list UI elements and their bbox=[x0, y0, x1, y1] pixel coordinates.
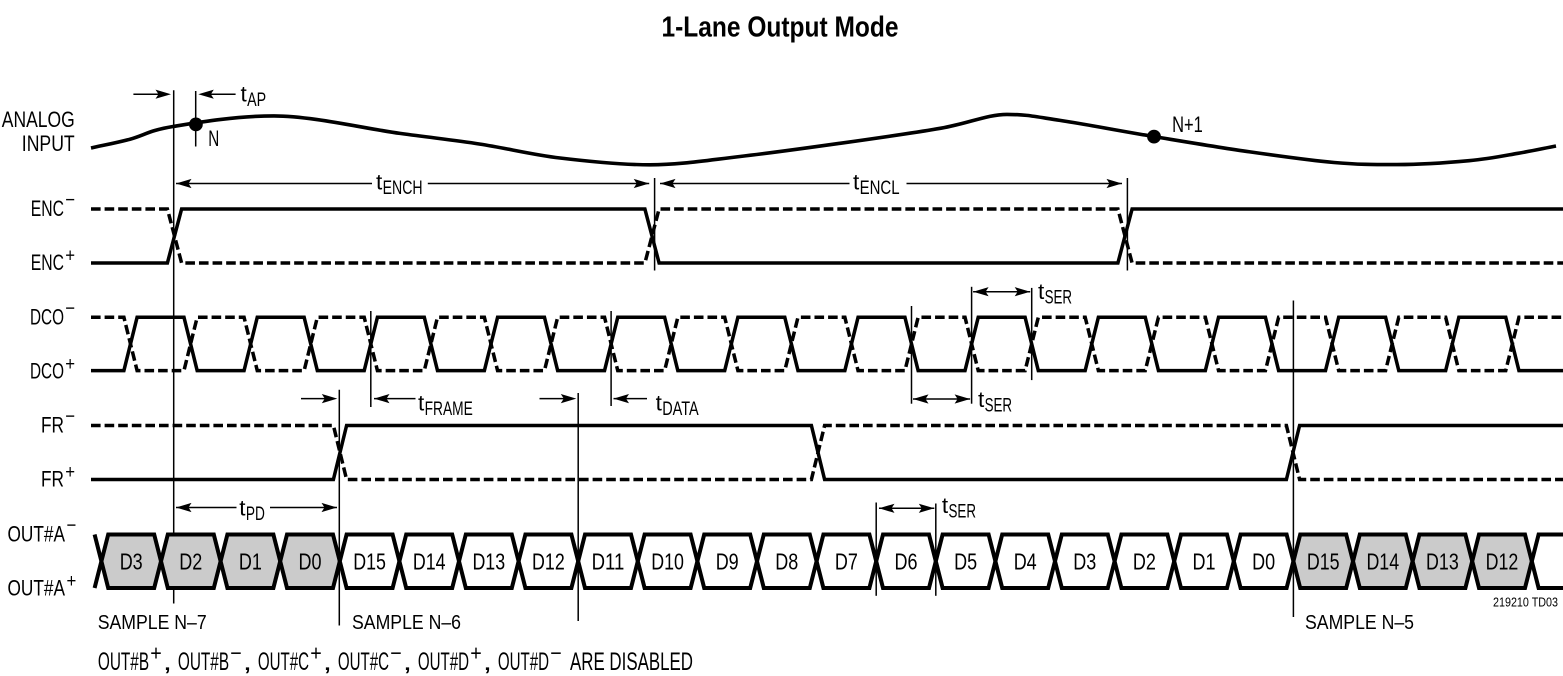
svg-text:ENCH: ENCH bbox=[383, 177, 423, 199]
svg-text:+: + bbox=[65, 461, 75, 483]
svg-text:+: + bbox=[65, 245, 75, 267]
svg-text:−: − bbox=[550, 641, 562, 666]
svg-text:D2: D2 bbox=[179, 548, 202, 574]
svg-text:,: , bbox=[403, 648, 412, 676]
svg-text:D1: D1 bbox=[239, 548, 262, 574]
svg-text:D4: D4 bbox=[1014, 548, 1037, 574]
svg-text:N+1: N+1 bbox=[1172, 112, 1203, 137]
svg-text:219210 TD03: 219210 TD03 bbox=[1493, 596, 1558, 610]
svg-text:PD: PD bbox=[246, 503, 265, 525]
svg-text:SER: SER bbox=[985, 395, 1013, 417]
svg-text:OUT#B: OUT#B bbox=[178, 648, 229, 676]
svg-text:−: − bbox=[67, 514, 77, 536]
svg-text:D13: D13 bbox=[1426, 548, 1459, 574]
svg-text:+: + bbox=[67, 570, 77, 592]
svg-text:ANALOG: ANALOG bbox=[2, 107, 75, 132]
svg-text:−: − bbox=[65, 298, 75, 320]
svg-text:FR: FR bbox=[41, 413, 64, 438]
svg-text:OUT#B: OUT#B bbox=[98, 648, 149, 676]
svg-text:,: , bbox=[163, 648, 172, 676]
svg-text:INPUT: INPUT bbox=[22, 131, 75, 156]
svg-text:D7: D7 bbox=[835, 548, 858, 574]
svg-text:SAMPLE N–7: SAMPLE N–7 bbox=[98, 611, 207, 634]
svg-text:DCO: DCO bbox=[30, 358, 64, 383]
svg-text:D15: D15 bbox=[1307, 548, 1340, 574]
svg-text:1-Lane Output Mode: 1-Lane Output Mode bbox=[662, 12, 899, 44]
svg-text:DCO: DCO bbox=[30, 305, 64, 330]
svg-text:FRAME: FRAME bbox=[425, 398, 473, 420]
svg-text:D12: D12 bbox=[532, 548, 565, 574]
svg-text:D3: D3 bbox=[120, 548, 143, 574]
svg-text:D9: D9 bbox=[716, 548, 739, 574]
svg-text:ENCL: ENCL bbox=[860, 177, 900, 199]
svg-text:−: − bbox=[230, 641, 242, 666]
svg-text:D12: D12 bbox=[1486, 548, 1519, 574]
svg-text:+: + bbox=[310, 641, 322, 666]
svg-text:D10: D10 bbox=[651, 548, 684, 574]
svg-text:D0: D0 bbox=[1252, 548, 1275, 574]
svg-text:D11: D11 bbox=[592, 548, 625, 574]
svg-text:DATA: DATA bbox=[662, 398, 699, 420]
svg-text:−: − bbox=[65, 406, 75, 428]
svg-text:SAMPLE N–5: SAMPLE N–5 bbox=[1305, 611, 1414, 634]
svg-text:+: + bbox=[65, 353, 75, 375]
svg-text:ARE DISABLED: ARE DISABLED bbox=[570, 648, 693, 676]
svg-text:D6: D6 bbox=[895, 548, 918, 574]
svg-text:OUT#A: OUT#A bbox=[8, 521, 66, 546]
svg-text:,: , bbox=[243, 648, 252, 676]
svg-text:−: − bbox=[390, 641, 402, 666]
svg-text:AP: AP bbox=[247, 89, 266, 111]
svg-text:+: + bbox=[470, 641, 482, 666]
svg-text:OUT#D: OUT#D bbox=[418, 648, 469, 676]
svg-text:SER: SER bbox=[1045, 287, 1073, 309]
svg-text:SAMPLE N–6: SAMPLE N–6 bbox=[352, 611, 461, 634]
svg-text:D14: D14 bbox=[413, 548, 446, 574]
svg-text:D5: D5 bbox=[954, 548, 977, 574]
svg-text:D0: D0 bbox=[299, 548, 322, 574]
svg-text:D15: D15 bbox=[353, 548, 386, 574]
svg-text:D3: D3 bbox=[1073, 548, 1096, 574]
svg-text:OUT#D: OUT#D bbox=[498, 648, 549, 676]
svg-text:+: + bbox=[150, 641, 162, 666]
svg-text:OUT#A: OUT#A bbox=[8, 575, 66, 600]
svg-text:,: , bbox=[483, 648, 492, 676]
svg-text:D14: D14 bbox=[1366, 548, 1399, 574]
svg-text:FR: FR bbox=[41, 467, 64, 492]
svg-text:,: , bbox=[323, 648, 332, 676]
svg-text:ENC: ENC bbox=[31, 250, 64, 275]
svg-text:D13: D13 bbox=[472, 548, 505, 574]
svg-text:OUT#C: OUT#C bbox=[338, 648, 389, 676]
svg-text:OUT#C: OUT#C bbox=[258, 648, 309, 676]
svg-text:D1: D1 bbox=[1193, 548, 1216, 574]
svg-text:D8: D8 bbox=[775, 548, 798, 574]
svg-text:ENC: ENC bbox=[31, 196, 64, 221]
svg-text:D2: D2 bbox=[1133, 548, 1156, 574]
svg-text:−: − bbox=[65, 189, 75, 211]
svg-text:N: N bbox=[208, 126, 219, 151]
svg-text:SER: SER bbox=[949, 501, 977, 523]
